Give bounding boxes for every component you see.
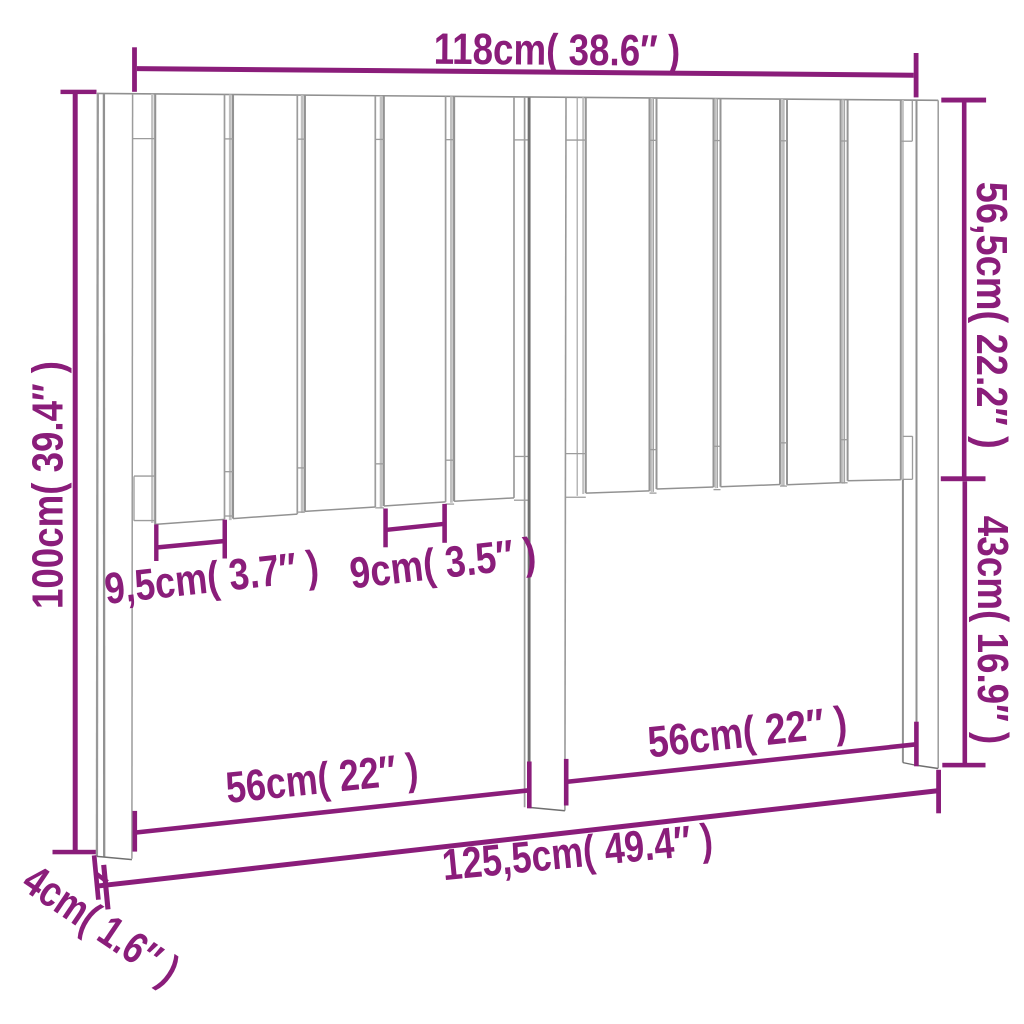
svg-text:56,5cm( 22.2″ ): 56,5cm( 22.2″ ) (967, 182, 1016, 449)
svg-text:118cm( 38.6″ ): 118cm( 38.6″ ) (434, 25, 681, 76)
svg-text:100cm( 39.4″ ): 100cm( 39.4″ ) (24, 361, 73, 609)
svg-text:43cm( 16.9″ ): 43cm( 16.9″ ) (968, 516, 1017, 745)
